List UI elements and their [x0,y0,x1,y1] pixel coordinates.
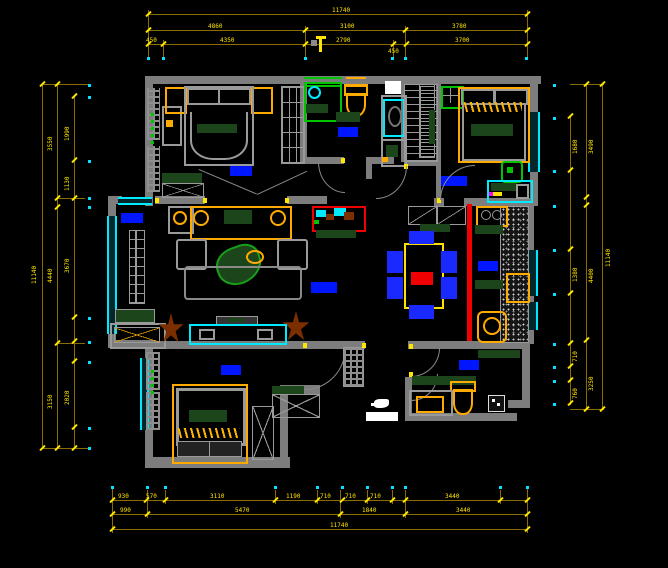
dim-label: 710 [572,351,579,362]
extension-dot [88,160,91,163]
dim-line [148,44,527,45]
dim-label: 2020 [64,391,71,405]
dining-chair-icon [441,251,457,273]
bed-drape [176,428,240,438]
bed-pillow [197,124,237,133]
dim-label: 3150 [47,395,54,409]
dim-line [586,84,587,410]
dim-label: 570 [146,493,157,500]
dim-label: 11740 [330,522,348,529]
tv-screen [228,318,244,322]
footboard-panel [209,441,242,457]
dim-label: 11140 [605,249,612,267]
dim-extension-line [42,84,88,85]
sink-basin [483,317,501,335]
washer-detail [382,157,388,162]
extension-dot [88,206,91,209]
extension-dot [525,57,528,60]
door-swing-icon [376,166,407,199]
dining-chair-icon [409,231,434,244]
extension-dot [341,486,344,489]
door-hinge [285,198,289,203]
headboard-panel [218,88,251,105]
level-marker-icon [319,39,322,52]
rug [184,266,302,300]
extension-dot [553,117,556,120]
extension-dot [274,486,277,489]
extension-dot [88,361,91,364]
cabinet-decor [344,212,354,220]
dim-label: 1840 [362,507,376,514]
door-swing-icon [257,171,307,195]
dim-label: 11740 [332,7,350,14]
extension-dot [164,486,167,489]
wall-hatch-decor [146,392,160,430]
cabinet-item [257,329,273,340]
hall-cabinet [316,230,356,238]
room-label-balcony [121,213,143,223]
dim-line [148,14,527,15]
extension-dot [499,486,502,489]
drawing-canvas[interactable]: 11740 4860 3100 3780 450 4350 2790 450 3… [0,0,668,568]
sofa-arm-scroll [193,210,209,226]
counter-top [475,280,503,289]
dim-label: 4400 [588,269,595,283]
door-swing-icon [440,165,475,200]
dim-label: 760 [572,388,579,399]
wardrobe-top [272,386,304,394]
north-marker-icon [371,403,375,406]
extension-dot [304,57,307,60]
door-swing-icon [305,347,346,390]
room-label-living-room [311,282,337,293]
dresser-knob-icon [166,120,173,127]
dim-label: 450 [388,48,399,55]
extension-dot [404,57,407,60]
extension-dot [553,249,556,252]
dim-label: 2790 [336,37,350,44]
extension-dot [88,197,91,200]
window-seat-frame [114,327,160,343]
door-panel [385,81,401,94]
dim-label: 5470 [235,507,249,514]
bath-cabinet [336,112,360,122]
footboard-panel [177,441,210,457]
extension-dot [88,447,91,450]
dim-label: 3550 [47,137,54,151]
cabinet-decor [326,214,334,220]
wardrobe-icon [281,86,305,164]
dim-label: 3440 [456,507,470,514]
extension-dot [553,343,556,346]
dim-line [112,514,527,515]
coat-rack-pole [135,230,137,302]
dim-line [42,84,43,448]
drain-dot [497,403,500,406]
desk-item [489,192,493,196]
dim-line [112,500,527,501]
extension-dot [553,205,556,208]
extension-dot [316,486,319,489]
dim-label: 990 [120,507,131,514]
wall [508,400,530,408]
bath-counter [478,350,520,358]
sliding-door-track [467,204,472,341]
burner-icon [492,210,502,220]
dim-label: 1680 [572,140,579,154]
dim-label: 1990 [64,127,71,141]
door-swing-icon [411,348,440,377]
extension-dot [88,341,91,344]
dim-extension-line [527,10,528,59]
extension-dot [147,57,150,60]
wall [366,157,372,179]
extension-dot [88,317,91,320]
extension-dot [553,380,556,383]
dim-tick [599,406,605,412]
toilet-icon [453,389,473,415]
extension-dot [526,486,529,489]
extension-dot [391,57,394,60]
dim-line [112,529,527,530]
extension-dot [366,486,369,489]
dim-label: 710 [320,493,331,500]
dim-line [570,117,571,405]
balcony-bench [115,309,155,323]
room-label-bathroom-2 [459,360,479,370]
dim-label: 3670 [64,259,71,273]
bed-footboard-arc [190,112,248,160]
washer-drum [386,145,398,157]
extension-dot [553,366,556,369]
fan-blade [443,95,458,96]
dining-chair-icon [387,277,403,299]
dim-label: 4860 [208,23,222,30]
sofa-arm-scroll [270,210,286,226]
dim-label: 4350 [220,37,234,44]
cabinet-decor [316,210,326,217]
counter-top [475,225,503,234]
sideboard-icon [437,206,466,225]
extension-dot [391,486,394,489]
door-hinge [155,198,159,203]
extension-dot [88,84,91,87]
plant-icon [151,112,154,144]
dim-label: 11140 [31,266,38,284]
dim-label: 1380 [572,268,579,282]
door-swing-icon [318,162,345,193]
dim-line [602,84,603,410]
coat-rack-icon [129,230,145,304]
bench-top [162,173,202,183]
cabinet-item [199,329,215,340]
dim-label: 3440 [445,493,459,500]
dim-tick [567,400,573,406]
burner-icon [481,210,491,220]
dim-label: 3700 [455,37,469,44]
extension-dot [553,403,556,406]
dim-label: 710 [345,493,356,500]
room-label-bedroom-3 [221,365,241,375]
bed-pillow [471,124,513,136]
extension-dot [553,84,556,87]
desk-top [491,183,517,191]
room-label-bathroom [338,127,358,137]
dim-line [57,84,58,448]
door-hinge [362,343,366,348]
dim-label: 450 [146,37,157,44]
window [118,197,152,205]
shower-head-icon [308,86,321,99]
dim-label: 1130 [64,177,71,191]
room-label-kitchen [478,261,498,271]
dim-label: 3780 [452,23,466,30]
extension-dot [88,427,91,430]
wall-hatch-decor [147,146,160,192]
drain-dot [492,399,495,402]
extension-dot [162,57,165,60]
shower-shelf [306,104,328,113]
headboard-panel [187,88,220,105]
dim-label: 3100 [340,23,354,30]
sideboard-icon [408,206,437,225]
north-marker-icon [374,399,389,408]
wardrobe-shelf [429,110,435,144]
wall [522,348,530,406]
basin-icon [388,106,402,127]
threshold-marker [366,412,398,421]
appliance-icon [506,273,530,303]
extension-dot [146,486,149,489]
coffee-table-detail [246,250,264,264]
dining-chair-icon [409,305,434,319]
dim-label: 710 [370,493,381,500]
dim-extension-line [42,448,88,449]
cabinet-decor [314,220,319,224]
bench-icon [162,183,204,198]
side-table-plant [173,211,187,225]
dim-label: 3490 [588,140,595,154]
dining-chair-icon [387,251,403,273]
dining-table-center [411,272,433,285]
entry-door-icon [343,347,364,387]
dim-label: 930 [118,493,129,500]
desk-item [493,192,502,196]
wardrobe-icon [272,394,320,418]
plant-icon [151,366,154,394]
wall [145,76,541,84]
door-hinge [203,198,207,203]
extension-dot [553,293,556,296]
sofa-cushion [224,210,252,224]
extension-dot [404,486,407,489]
chair-seat [507,167,513,173]
dim-extension-line [148,10,149,59]
room-label-master-bedroom [230,166,252,176]
extension-dot [553,170,556,173]
wardrobe-icon [252,406,274,460]
extension-dot [111,486,114,489]
dim-label: 4440 [47,269,54,283]
level-marker-icon [311,40,317,46]
basin-icon [416,396,444,413]
extension-dot [88,96,91,99]
dim-line [74,96,75,448]
wall [287,196,327,204]
dim-label: 3250 [588,377,595,391]
dim-label: 3110 [210,493,224,500]
bed-drape [462,102,522,112]
dining-chair-icon [441,277,457,299]
desk-chair [516,184,529,199]
bed-pillow [189,410,227,422]
dim-line [148,30,527,31]
nightstand-icon [251,87,273,114]
dim-label: 1190 [286,493,300,500]
